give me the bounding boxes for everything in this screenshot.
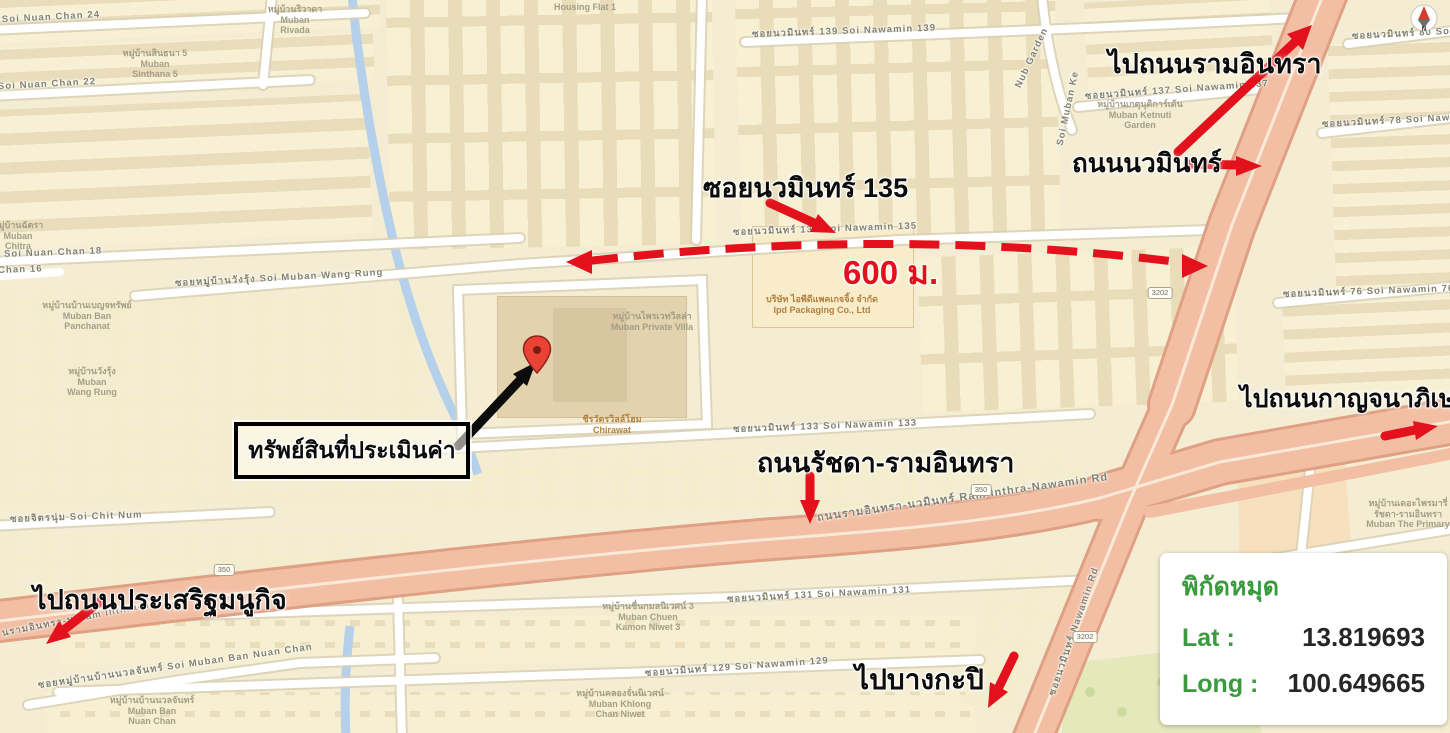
latitude-label: Lat :: [1182, 624, 1235, 653]
annotation-soi-135: ซอยนวมินทร์ 135: [703, 166, 908, 209]
property-label-box: ทรัพย์สินที่ประเมินค่า: [234, 422, 470, 479]
coordinates-title: พิกัดหมุด: [1182, 567, 1425, 607]
road-vertical-3: [398, 600, 402, 733]
road-villa-loop: [458, 280, 707, 434]
road-soi-nuan-chan-18: [0, 238, 520, 262]
longitude-row: Long : 100.649665: [1182, 668, 1425, 699]
latitude-row: Lat : 13.819693: [1182, 622, 1425, 653]
annotation-to-ram-inthra: ไปถนนรามอินทรา: [1108, 42, 1322, 85]
longitude-label: Long :: [1182, 670, 1258, 699]
road-soi-nawamin-139: [745, 18, 1300, 42]
annotation-distance: 600 ม.: [843, 246, 938, 299]
annotation-to-prasert: ไปถนนประเสริฐมนูกิจ: [33, 578, 287, 621]
annotation-nawamin-road: ถนนนวมินทร์: [1072, 143, 1222, 184]
coordinates-panel: พิกัดหมุด Lat : 13.819693 Long : 100.649…: [1160, 553, 1447, 725]
road-chan-16: [0, 272, 60, 277]
annotation-ratchada: ถนนรัชดา-รามอินทรา: [757, 441, 1014, 484]
annotation-to-bang-kapi: ไปบางกะปิ: [855, 658, 984, 702]
property-label-text: ทรัพย์สินที่ประเมินค่า: [248, 433, 455, 469]
latitude-value: 13.819693: [1302, 622, 1425, 653]
annotation-to-kanchanaphisek: ไปถนนกาญจนาภิเษก: [1240, 379, 1450, 419]
map-canvas[interactable]: ซอยนวลจันทร์ 24 Soi Nuan Chan 24ซอยนวลจั…: [0, 0, 1450, 733]
longitude-value: 100.649665: [1288, 668, 1425, 699]
